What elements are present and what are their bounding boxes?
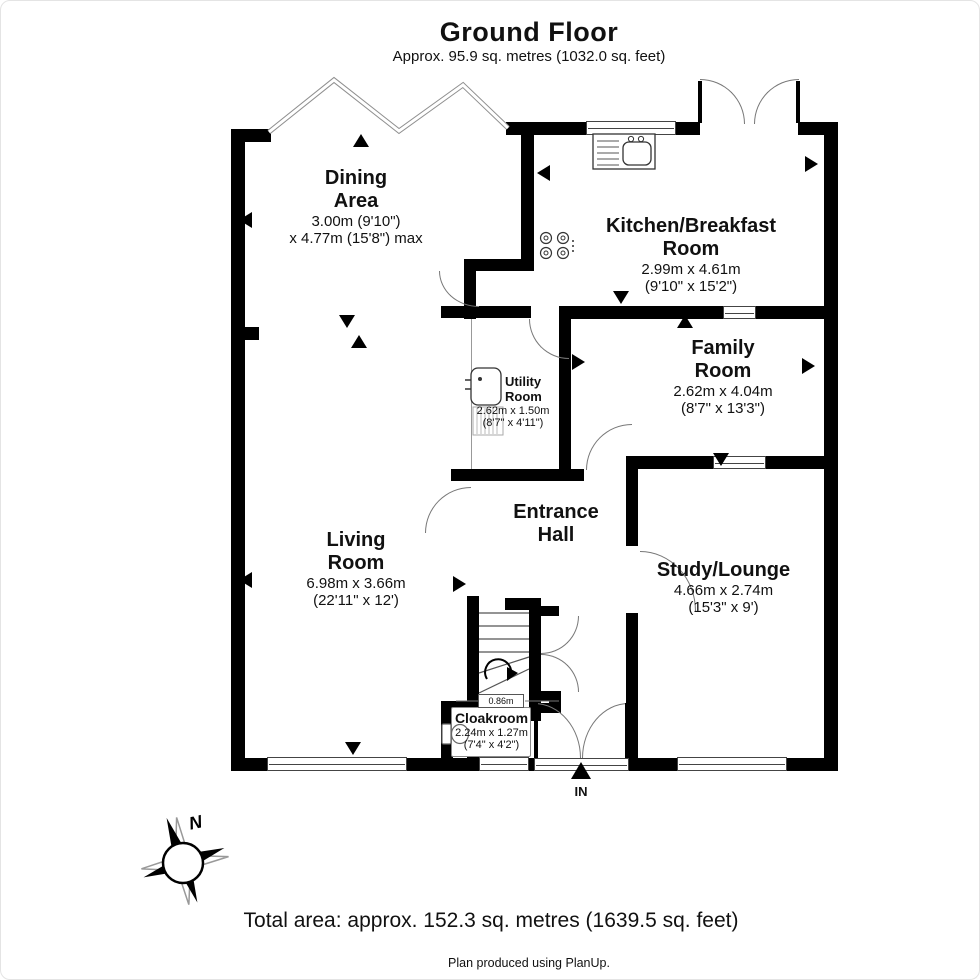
wall-segment [629,758,677,771]
wall-segment [756,306,824,319]
room-label-cloakroom: Cloakroom 2.24m x 1.27m (7'4" x 4'2") [444,711,539,751]
door-leaf [796,81,800,123]
window [586,121,676,135]
direction-arrow-icon [345,742,361,755]
room-name: Cloakroom [444,711,539,727]
direction-arrow-icon [339,315,355,328]
stairs [479,613,529,693]
room-label-dining: Dining Area 3.00m (9'10") x 4.77m (15'8"… [256,167,456,247]
direction-arrow-icon [239,212,252,228]
wall-segment [787,758,838,771]
door-swing-arc [439,271,479,307]
direction-arrow-icon [537,165,550,181]
compass-rose-icon [127,803,239,917]
window [677,757,787,771]
wall-segment [245,327,259,340]
compass-north-label: N [187,811,205,833]
floor-plan-page: Ground Floor Approx. 95.9 sq. metres (10… [0,0,980,980]
room-name: Study/Lounge [631,559,816,582]
room-dimensions: (7'4" x 4'2") [444,739,539,751]
direction-arrow-icon [713,453,729,466]
internal-window [723,306,756,319]
door-leaf [625,703,629,758]
cupboard-door-arc [541,616,579,654]
room-name: Utility [461,375,565,390]
room-label-study: Study/Lounge 4.66m x 2.74m (15'3" x 9') [631,559,816,616]
door-swing-arc [529,319,569,359]
room-label-entrance-hall: Entrance Hall [481,501,631,547]
wall-segment [529,598,541,701]
room-dimensions: (8'7" x 13'3") [623,400,823,417]
wall-segment [521,135,534,261]
wall-segment [451,469,584,481]
wall-segment [676,122,700,135]
direction-arrow-icon [239,572,252,588]
credit-text: Plan produced using PlanUp. [77,956,980,970]
sink-unit-icon [593,134,655,169]
wall-segment [231,129,271,142]
wall-segment [571,306,723,319]
page-title: Ground Floor [77,17,980,48]
window [479,757,529,771]
room-dimensions: x 4.77m (15'8") max [256,230,456,247]
room-dimensions: (22'11" x 12') [271,592,441,609]
cupboard-door-arc [541,654,579,692]
wall-segment [441,306,531,318]
direction-arrow-icon [521,213,534,229]
room-dimensions: 4.66m x 2.74m [631,582,816,599]
direction-arrow-icon [677,315,693,328]
direction-arrow-icon [606,135,622,148]
window [267,757,407,771]
wall-segment [505,598,541,610]
room-label-family: Family Room 2.62m x 4.04m (8'7" x 13'3") [623,337,823,417]
room-dimensions: (9'10" x 15'2") [587,278,795,295]
direction-arrow-icon [453,576,466,592]
stairs-up-arrow-icon [485,659,518,681]
wall-segment [824,122,838,771]
room-dimensions: 2.99m x 4.61m [587,261,795,278]
french-door-arc [754,79,799,124]
room-name: Entrance [481,501,631,524]
room-label-living: Living Room 6.98m x 3.66m (22'11" x 12') [271,529,441,609]
door-swing-arc [586,424,632,470]
door-swing-arc [425,487,471,533]
entrance-door-arc [534,703,581,758]
wall-segment [231,758,267,771]
room-dimensions: 3.00m (9'10") [256,213,456,230]
open-plan-zigzag [269,80,508,132]
room-dimensions: 2.24m x 1.27m [444,727,539,739]
room-label-kitchen: Kitchen/Breakfast Room 2.99m x 4.61m (9'… [587,215,795,295]
room-dimensions: 2.62m x 1.50m [461,405,565,418]
room-name: Living [271,529,441,552]
direction-arrow-icon [353,134,369,147]
entrance-door-arc [582,703,629,758]
entrance-in-label: IN [566,785,596,800]
room-label-utility: Utility Room 2.62m x 1.50m (8'7" x 4'11"… [461,375,565,430]
room-name: Room [271,552,441,575]
room-dimensions: (8'7" x 4'11") [461,417,565,430]
room-dimensions: (15'3" x 9') [631,599,816,616]
french-door-arc [700,79,745,124]
wall-segment [506,122,586,135]
room-name: Room [587,238,795,261]
direction-arrow-icon [805,156,818,172]
total-area-text: Total area: approx. 152.3 sq. metres (16… [1,909,980,933]
room-name: Dining [256,167,456,190]
entrance-arrow-icon [571,762,591,779]
room-name: Room [461,390,565,405]
stair-width-dimension: 0.86m [478,694,524,708]
wall-segment [766,456,824,469]
door-leaf [698,81,702,123]
direction-arrow-icon [572,354,585,370]
room-name: Hall [481,524,631,547]
wall-segment [638,456,713,469]
room-name: Area [256,190,456,213]
room-dimensions: 6.98m x 3.66m [271,575,441,592]
room-dimensions: 2.62m x 4.04m [623,383,823,400]
room-name: Kitchen/Breakfast [587,215,795,238]
room-name: Family [623,337,823,360]
direction-arrow-icon [351,335,367,348]
room-name: Room [623,360,823,383]
hob-icon [541,233,575,259]
page-subtitle: Approx. 95.9 sq. metres (1032.0 sq. feet… [77,48,980,65]
wall-segment [541,606,559,616]
